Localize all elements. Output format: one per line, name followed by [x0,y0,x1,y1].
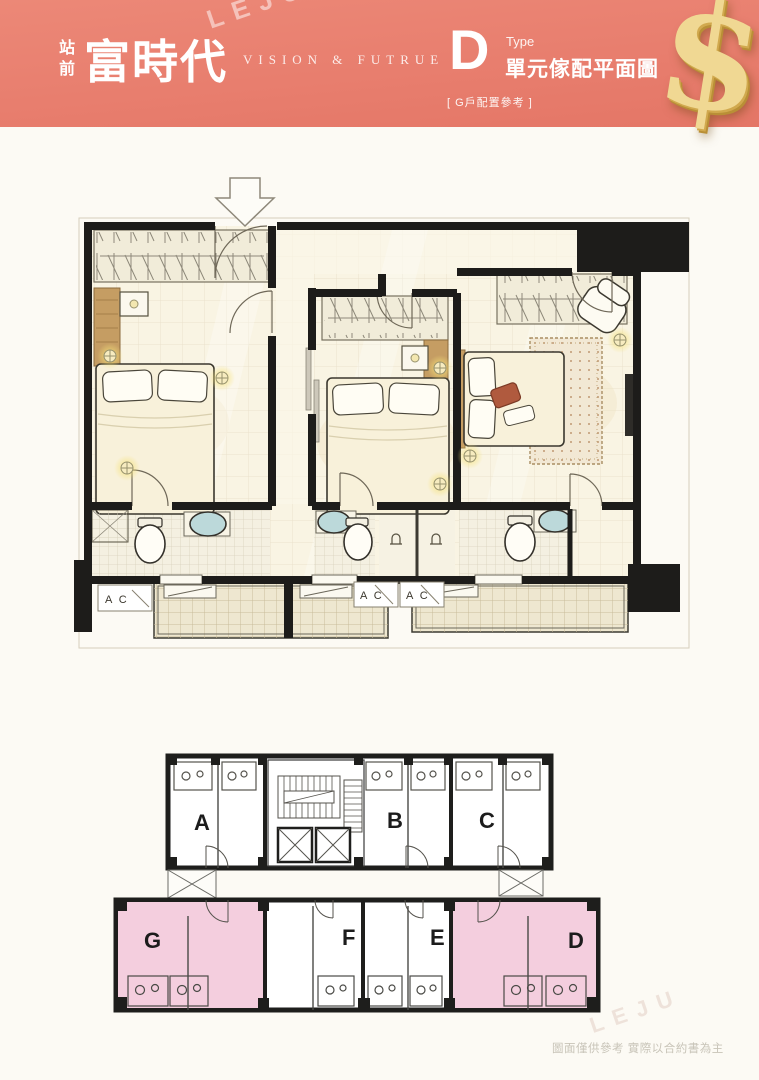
stair-core [268,760,364,866]
unit-label-e: E [430,925,445,950]
tv-panel [625,374,633,436]
station-char-2: 前 [59,60,75,81]
key-plan: A B C [108,738,656,1030]
station-prefix: 站 前 [59,39,75,81]
keyplan-top-row: A B C [168,754,551,898]
unit-highlight-d [451,902,596,1008]
unit-type-word: Type [506,34,534,49]
main-floor-plan: A C A C A C [72,168,694,670]
elevator [278,828,312,862]
unit-label-b: B [387,808,403,833]
unit-label-c: C [479,808,495,833]
ac-label: A C [360,590,384,602]
bed-middle [327,378,449,514]
brochure-page: 站 前 富時代 VISION & FUTRUE D Type 單元傢配平面圖 [… [0,0,759,1080]
keyplan-bottom-row: G F E D [116,898,598,1010]
unit-label-d: D [568,928,584,953]
station-char-1: 站 [59,39,75,60]
elevator [316,828,350,862]
ac-label: A C [406,590,430,602]
header-banner: 站 前 富時代 VISION & FUTRUE D Type 單元傢配平面圖 [… [0,0,759,127]
disclaimer-text: 圖面僅供參考 實際以合約書為主 [552,1040,759,1056]
bed-left [96,364,214,514]
dollar-icon: $ [649,0,759,137]
ac-box-3: A C [400,582,444,607]
unit-label-a: A [194,810,210,835]
entry-arrow-icon [216,178,274,226]
ac-box-2: A C [354,582,398,607]
project-name: 富時代 [84,26,228,92]
unit-type-note: [ G戶配置參考 ] [447,94,533,110]
ac-box-1: A C [98,585,152,611]
unit-highlight-g [118,902,265,1008]
ac-label: A C [105,594,129,606]
project-tagline: VISION & FUTRUE [243,52,444,68]
balcony-left [154,582,388,638]
unit-label-f: F [342,925,355,950]
light-well [168,870,543,898]
closet-middle [322,296,448,340]
unit-type-letter: D [449,22,489,78]
bed-master [464,352,564,446]
unit-label-g: G [144,928,161,953]
closet-left [94,230,270,282]
unit-type-title: 單元傢配平面圖 [505,53,659,83]
